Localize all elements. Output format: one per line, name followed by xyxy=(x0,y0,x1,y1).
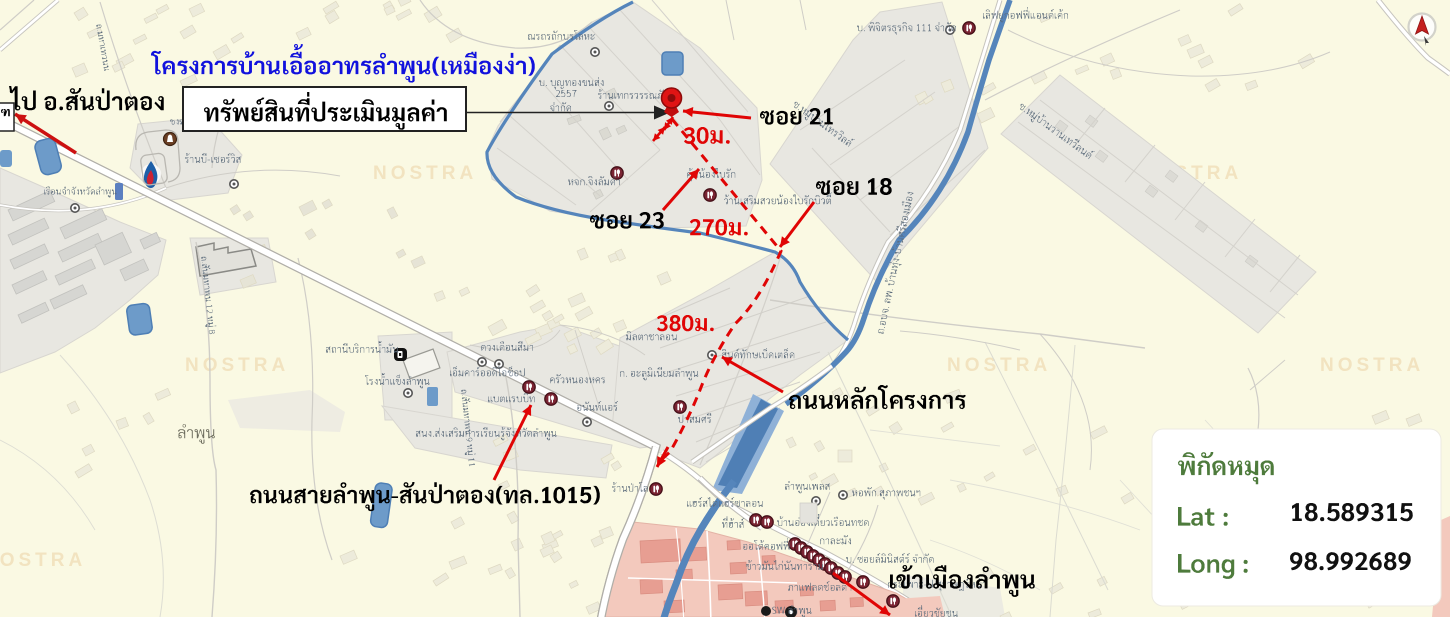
svg-text:NOSTRA: NOSTRA xyxy=(947,355,1051,376)
svg-text:NOSTRA: NOSTRA xyxy=(1320,355,1424,376)
svg-text:NOSTRA: NOSTRA xyxy=(185,355,289,376)
svg-text:NOSTRA: NOSTRA xyxy=(373,163,477,184)
svg-text:NOSTRA: NOSTRA xyxy=(0,550,86,571)
